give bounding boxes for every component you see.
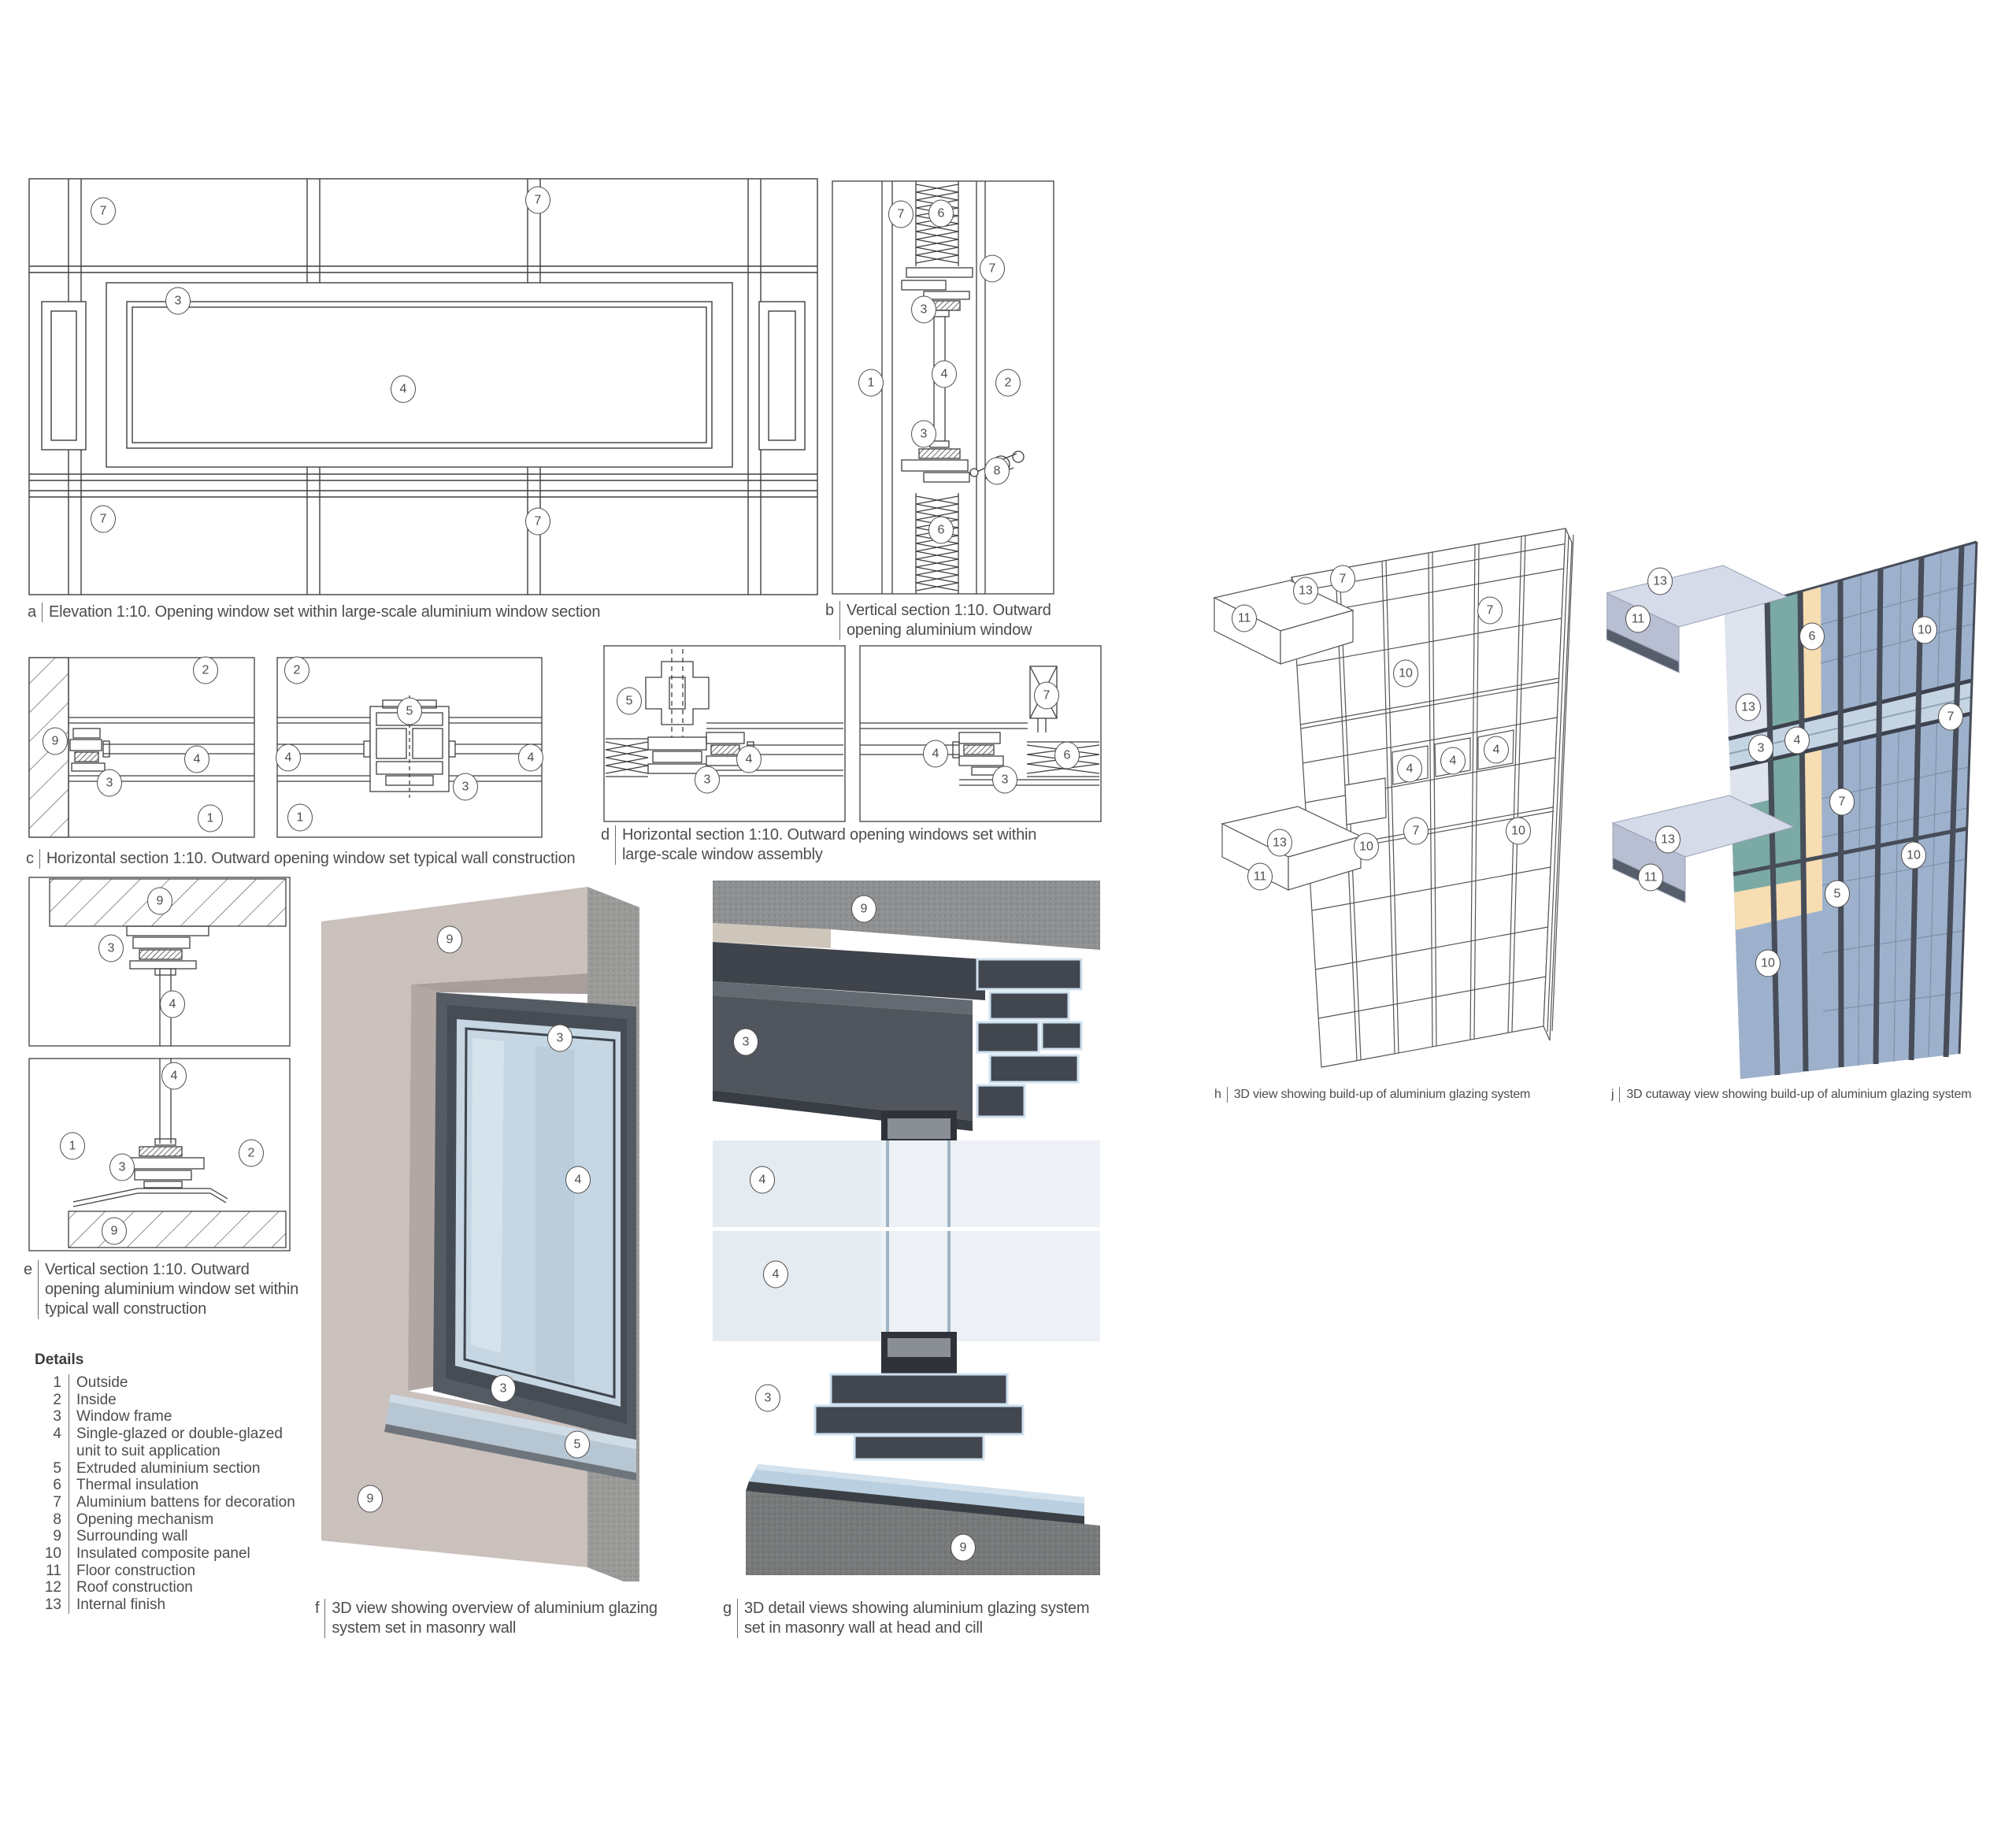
callout-4: 4 xyxy=(518,744,543,772)
caption-d-tag: d xyxy=(601,825,615,865)
caption-h: h 3D view showing build-up of aluminium … xyxy=(1214,1087,1640,1103)
callout-1: 1 xyxy=(60,1133,85,1160)
legend-item-number: 2 xyxy=(35,1392,69,1409)
callout-1: 1 xyxy=(287,804,313,832)
legend-item: 7 Aluminium battens for decoration xyxy=(35,1494,318,1511)
callout-3: 3 xyxy=(109,1154,135,1181)
legend-item: 12 Roof construction xyxy=(35,1579,318,1596)
caption-a-tag: a xyxy=(28,603,42,622)
callout-1: 1 xyxy=(198,805,223,832)
callout-3: 3 xyxy=(992,766,1017,794)
callout-4: 4 xyxy=(1784,727,1810,755)
caption-a: a Elevation 1:10. Opening window set wit… xyxy=(28,603,705,622)
callout-7: 7 xyxy=(888,201,913,228)
callout-7: 7 xyxy=(525,187,550,214)
callout-3: 3 xyxy=(547,1025,573,1052)
callout-11: 11 xyxy=(1247,863,1273,891)
legend-item: 6 Thermal insulation xyxy=(35,1477,318,1494)
callout-3: 3 xyxy=(733,1029,758,1056)
callout-9: 9 xyxy=(358,1485,383,1513)
callout-7: 7 xyxy=(1938,703,1963,731)
caption-f: f 3D view showing overview of aluminium … xyxy=(315,1599,709,1638)
callout-5: 5 xyxy=(1825,881,1850,908)
callout-4: 4 xyxy=(750,1166,775,1194)
legend-item-label: Window frame xyxy=(69,1408,306,1426)
callout-7: 7 xyxy=(525,508,550,536)
callout-8: 8 xyxy=(984,458,1010,485)
caption-f-tag: f xyxy=(315,1599,324,1638)
legend-item: 8 Opening mechanism xyxy=(35,1511,318,1529)
callout-7: 7 xyxy=(1403,818,1429,845)
callout-9: 9 xyxy=(43,728,68,755)
callout-4: 4 xyxy=(923,740,948,768)
callout-4: 4 xyxy=(736,746,762,773)
legend-item-label: Floor construction xyxy=(69,1563,306,1580)
callout-3: 3 xyxy=(453,773,478,801)
callout-7: 7 xyxy=(1330,565,1355,593)
legend-item: 13 Internal finish xyxy=(35,1596,318,1614)
figure-e-head-panel: 934 xyxy=(28,876,291,1047)
caption-j-tag: j xyxy=(1611,1087,1619,1103)
callout-3: 3 xyxy=(755,1385,780,1412)
caption-d: d Horizontal section 1:10. Outward openi… xyxy=(601,825,1058,865)
callout-6: 6 xyxy=(1054,742,1080,769)
callout-3: 3 xyxy=(97,769,122,797)
legend-item-label: Inside xyxy=(69,1392,306,1409)
legend-item-label: Roof construction xyxy=(69,1579,306,1596)
caption-g-text: 3D detail views showing aluminium glazin… xyxy=(737,1599,1101,1638)
callout-10: 10 xyxy=(1912,617,1937,644)
legend-item: 11 Floor construction xyxy=(35,1563,318,1580)
callout-4: 4 xyxy=(161,1062,187,1090)
callout-3: 3 xyxy=(491,1375,516,1403)
caption-g-tag: g xyxy=(723,1599,737,1638)
legend-item-number: 12 xyxy=(35,1579,69,1596)
caption-h-text: 3D view showing build-up of aluminium gl… xyxy=(1227,1087,1530,1103)
callout-2: 2 xyxy=(193,657,218,684)
callout-10: 10 xyxy=(1393,660,1418,688)
details-legend-items: 1 Outside 2 Inside 3 Window frame 4 Sing… xyxy=(35,1374,318,1614)
callout-2: 2 xyxy=(284,657,309,684)
callout-10: 10 xyxy=(1901,842,1926,870)
legend-item-label: Internal finish xyxy=(69,1596,306,1614)
callout-11: 11 xyxy=(1625,606,1651,633)
legend-item: 3 Window frame xyxy=(35,1408,318,1426)
callout-9: 9 xyxy=(102,1218,127,1245)
callout-7: 7 xyxy=(91,506,116,533)
callout-9: 9 xyxy=(951,1534,976,1562)
callout-10: 10 xyxy=(1755,950,1781,977)
figure-d-left-panel: 543 xyxy=(602,644,847,823)
callout-4: 4 xyxy=(276,744,301,772)
legend-item-label: Extruded aluminium section xyxy=(69,1460,306,1478)
callout-2: 2 xyxy=(995,369,1021,397)
callout-4: 4 xyxy=(565,1166,591,1194)
details-legend-title: Details xyxy=(35,1352,318,1369)
legend-item-number: 10 xyxy=(35,1545,69,1563)
callout-4: 4 xyxy=(184,746,209,773)
figure-f-3d-overview: 934359 xyxy=(315,881,713,1581)
callout-5: 5 xyxy=(397,698,422,725)
caption-b: b Vertical section 1:10. Outward opening… xyxy=(825,601,1062,640)
callout-7: 7 xyxy=(1034,682,1059,710)
caption-c-tag: c xyxy=(26,849,39,869)
legend-item: 4 Single-glazed or double-glazed unit to… xyxy=(35,1426,318,1459)
caption-f-text: 3D view showing overview of aluminium gl… xyxy=(324,1599,709,1638)
callout-4: 4 xyxy=(932,361,957,388)
callout-10: 10 xyxy=(1354,833,1379,861)
legend-item: 10 Insulated composite panel xyxy=(35,1545,318,1563)
legend-item: 9 Surrounding wall xyxy=(35,1528,318,1545)
callout-13: 13 xyxy=(1655,826,1681,854)
callout-7: 7 xyxy=(1477,597,1503,625)
callout-4: 4 xyxy=(1484,736,1509,764)
callout-7: 7 xyxy=(980,255,1005,283)
legend-item-number: 6 xyxy=(35,1477,69,1494)
callout-10: 10 xyxy=(1506,818,1531,845)
callout-4: 4 xyxy=(391,376,416,403)
legend-item-number: 3 xyxy=(35,1408,69,1426)
callout-7: 7 xyxy=(1829,788,1855,816)
figure-a-elevation: 773477 xyxy=(28,177,819,596)
callout-6: 6 xyxy=(1799,623,1825,651)
legend-item-label: Outside xyxy=(69,1374,306,1392)
caption-e: e Vertical section 1:10. Outward opening… xyxy=(24,1260,299,1319)
caption-e-tag: e xyxy=(24,1260,38,1319)
figure-d-right-panel: 7436 xyxy=(858,644,1102,823)
figure-g-head-detail: 934 xyxy=(713,881,1100,1227)
caption-g: g 3D detail views showing aluminium glaz… xyxy=(723,1599,1101,1638)
legend-item-number: 9 xyxy=(35,1528,69,1545)
callout-4: 4 xyxy=(1397,755,1422,783)
legend-item-label: Opening mechanism xyxy=(69,1511,306,1529)
figure-c-left-panel: 29431 xyxy=(28,656,256,839)
callout-9: 9 xyxy=(851,895,876,923)
legend-item-number: 8 xyxy=(35,1511,69,1529)
callout-13: 13 xyxy=(1736,694,1761,721)
figure-c-right-panel: 254431 xyxy=(276,656,543,839)
legend-item-label: Insulated composite panel xyxy=(69,1545,306,1563)
legend-item: 2 Inside xyxy=(35,1392,318,1409)
callout-5: 5 xyxy=(617,688,642,715)
figure-e-cill-panel: 41239 xyxy=(28,1057,291,1252)
callout-3: 3 xyxy=(911,296,936,324)
legend-item-number: 13 xyxy=(35,1596,69,1614)
caption-j: j 3D cutaway view showing build-up of al… xyxy=(1611,1087,2016,1103)
caption-c-text: Horizontal section 1:10. Outward opening… xyxy=(39,849,576,869)
callout-6: 6 xyxy=(928,517,954,544)
callout-3: 3 xyxy=(165,287,191,315)
caption-d-text: Horizontal section 1:10. Outward opening… xyxy=(615,825,1058,865)
callout-6: 6 xyxy=(928,200,954,228)
legend-item-number: 1 xyxy=(35,1374,69,1392)
caption-h-tag: h xyxy=(1214,1087,1227,1103)
legend-item: 1 Outside xyxy=(35,1374,318,1392)
callout-3: 3 xyxy=(695,766,720,794)
caption-c: c Horizontal section 1:10. Outward openi… xyxy=(26,849,577,869)
legend-item: 5 Extruded aluminium section xyxy=(35,1460,318,1478)
callout-2: 2 xyxy=(239,1140,264,1167)
legend-item-label: Single-glazed or double-glazed unit to s… xyxy=(69,1426,306,1459)
figure-g-cill-detail: 439 xyxy=(713,1231,1100,1575)
callout-11: 11 xyxy=(1232,605,1257,632)
details-legend: Details 1 Outside 2 Inside 3 Window fram… xyxy=(35,1352,318,1614)
callout-3: 3 xyxy=(1748,735,1773,762)
caption-a-text: Elevation 1:10. Opening window set withi… xyxy=(42,603,600,622)
figure-b-vertical-section: 7673412386 xyxy=(831,180,1055,595)
legend-item-number: 7 xyxy=(35,1494,69,1511)
callout-13: 13 xyxy=(1647,568,1673,595)
caption-j-text: 3D cutaway view showing build-up of alum… xyxy=(1619,1087,1971,1103)
caption-b-text: Vertical section 1:10. Outward opening a… xyxy=(839,601,1062,640)
callout-1: 1 xyxy=(858,369,884,397)
caption-b-tag: b xyxy=(825,601,839,640)
callout-9: 9 xyxy=(437,926,462,954)
figure-h-3d-buildup: 13117710444713101011 xyxy=(1213,516,1662,1077)
figure-j-3d-cutaway: 1311136103477510131110 xyxy=(1606,518,2016,1081)
callout-4: 4 xyxy=(1440,747,1466,775)
callout-5: 5 xyxy=(565,1431,590,1459)
callout-3: 3 xyxy=(98,935,124,962)
legend-item-label: Thermal insulation xyxy=(69,1477,306,1494)
legend-item-number: 4 xyxy=(35,1426,69,1459)
callout-13: 13 xyxy=(1293,577,1318,605)
callout-7: 7 xyxy=(91,198,116,225)
callout-3: 3 xyxy=(911,421,936,448)
callout-4: 4 xyxy=(763,1261,788,1288)
legend-item-number: 11 xyxy=(35,1563,69,1580)
callout-11: 11 xyxy=(1638,864,1663,892)
legend-item-number: 5 xyxy=(35,1460,69,1478)
book-page: 773477 a Elevation 1:10. Opening window … xyxy=(0,0,2016,1828)
callout-13: 13 xyxy=(1267,829,1292,857)
caption-e-text: Vertical section 1:10. Outward opening a… xyxy=(38,1260,299,1319)
legend-item-label: Surrounding wall xyxy=(69,1528,306,1545)
legend-item-label: Aluminium battens for decoration xyxy=(69,1494,306,1511)
callout-9: 9 xyxy=(147,888,172,915)
callout-4: 4 xyxy=(160,991,185,1018)
